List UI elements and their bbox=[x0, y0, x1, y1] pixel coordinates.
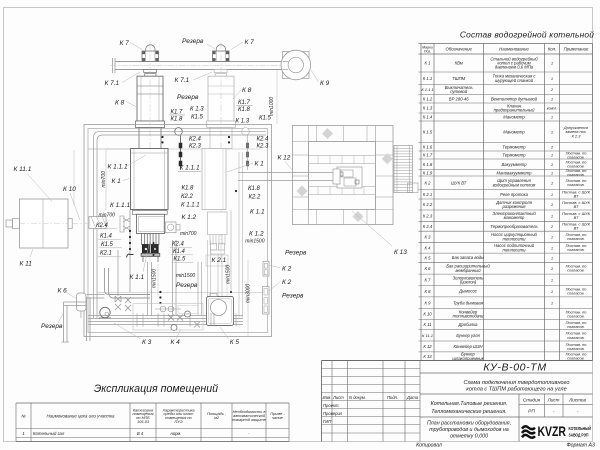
svg-text:К 1: К 1 bbox=[255, 161, 265, 168]
svg-text:согласов.: согласов. bbox=[567, 182, 585, 187]
svg-text:манометр: манометр bbox=[504, 215, 525, 220]
svg-text:К 5: К 5 bbox=[425, 255, 432, 260]
svg-text:К1.5: К1.5 bbox=[259, 116, 272, 122]
svg-text:ШУК ВТ: ШУК ВТ bbox=[451, 180, 467, 185]
svg-text:К 8: К 8 bbox=[425, 289, 432, 294]
svg-text:1: 1 bbox=[551, 76, 553, 81]
svg-text:Резерв: Резерв bbox=[182, 38, 204, 45]
svg-text:К1.5: К1.5 bbox=[191, 114, 204, 120]
svg-text:котла с ТШПМ работающего на уг: котла с ТШПМ работающего на угле bbox=[466, 387, 566, 393]
svg-text:К 1.1.1: К 1.1.1 bbox=[421, 87, 433, 92]
svg-text:К 1: К 1 bbox=[425, 61, 431, 66]
svg-text:К 2.3: К 2.3 bbox=[572, 133, 582, 138]
svg-text:min1000: min1000 bbox=[269, 97, 275, 116]
svg-text:К2.2: К2.2 bbox=[249, 195, 262, 201]
svg-text:1: 1 bbox=[22, 431, 24, 436]
svg-text:К 11: К 11 bbox=[20, 261, 33, 268]
svg-text:Наименование: Наименование bbox=[499, 47, 529, 52]
svg-text:KVZR: KVZR bbox=[538, 423, 567, 439]
svg-text:1: 1 bbox=[551, 245, 553, 250]
svg-text:К 2: К 2 bbox=[282, 279, 292, 286]
svg-text:К 1.3: К 1.3 bbox=[423, 106, 433, 111]
svg-text:Резерв: Резерв bbox=[177, 94, 199, 101]
svg-text:компл.: компл. bbox=[547, 107, 558, 111]
svg-text:КУ-В-00-ТМ: КУ-В-00-ТМ bbox=[483, 362, 546, 374]
svg-text:Примечание: Примечание bbox=[564, 47, 589, 52]
svg-text:К 1: К 1 bbox=[112, 178, 122, 185]
svg-text:К 2.2: К 2.2 bbox=[423, 202, 433, 207]
svg-text:согласов.: согласов. bbox=[567, 346, 585, 351]
svg-text:согласов.: согласов. bbox=[567, 356, 585, 361]
svg-text:К 10: К 10 bbox=[63, 186, 76, 193]
svg-text:Вентилятор дутьевой: Вентилятор дутьевой bbox=[491, 96, 538, 101]
svg-text:К1.5: К1.5 bbox=[101, 242, 114, 248]
svg-text:К1.8: К1.8 bbox=[238, 107, 251, 113]
svg-text:min700: min700 bbox=[180, 231, 197, 237]
svg-text:К 1.7: К 1.7 bbox=[423, 153, 433, 158]
svg-text:Изм.: Изм. bbox=[323, 395, 332, 400]
svg-text:К2.4: К2.4 bbox=[189, 137, 202, 143]
svg-text:К1.5: К1.5 bbox=[174, 257, 187, 263]
svg-text:Вакуумметр: Вакуумметр bbox=[501, 162, 527, 167]
svg-text:min1500: min1500 bbox=[152, 269, 158, 288]
svg-text:К2.3: К2.3 bbox=[257, 144, 270, 150]
svg-text:ВР 280-46: ВР 280-46 bbox=[449, 96, 469, 101]
svg-text:К 1.1.1: К 1.1.1 bbox=[180, 165, 200, 172]
svg-text:К1.8: К1.8 bbox=[171, 117, 184, 123]
svg-text:Манометр: Манометр bbox=[503, 115, 525, 120]
svg-text:Подп.: Подп. bbox=[387, 395, 398, 400]
svg-text:теплосети: теплосети bbox=[502, 236, 526, 241]
svg-text:К 2: К 2 bbox=[282, 266, 292, 273]
svg-text:Наименование цеха или участка: Наименование цеха или участка bbox=[47, 414, 116, 419]
svg-text:ВТ: ВТ bbox=[574, 204, 579, 209]
svg-text:К 11: К 11 bbox=[424, 322, 432, 327]
svg-text:К 8: К 8 bbox=[242, 87, 252, 94]
svg-text:Кол.: Кол. bbox=[548, 47, 556, 52]
svg-text:К 13: К 13 bbox=[394, 249, 407, 256]
svg-text:К 6: К 6 bbox=[425, 266, 432, 271]
svg-text:Резерв: Резерв bbox=[285, 250, 307, 257]
svg-text:К 2.3: К 2.3 bbox=[423, 213, 433, 218]
svg-text:согласов.: согласов. bbox=[567, 172, 585, 177]
svg-text:Обозначение: Обозначение bbox=[446, 47, 473, 52]
svg-text:Бункер угля: Бункер угля bbox=[456, 333, 480, 338]
svg-text:Формат А3: Формат А3 bbox=[567, 443, 595, 449]
svg-text:№: № bbox=[21, 414, 26, 419]
svg-text:К 1.6: К 1.6 bbox=[423, 144, 433, 149]
svg-text:К2.4: К2.4 bbox=[172, 242, 185, 248]
svg-text:Листов: Листов bbox=[568, 398, 586, 403]
svg-text:Конвейер ШЗН: Конвейер ШЗН bbox=[453, 344, 483, 349]
svg-text:Резерв: Резерв bbox=[176, 282, 198, 289]
svg-text:105-03: 105-03 bbox=[137, 419, 150, 424]
svg-text:1: 1 bbox=[551, 129, 553, 134]
svg-text:шлакоприемник: шлакоприемник bbox=[452, 356, 484, 361]
svg-text:К 1.4: К 1.4 bbox=[423, 115, 433, 120]
svg-text:ЗАВОД РЭП: ЗАВОД РЭП bbox=[569, 432, 589, 438]
svg-text:ПУЭ: ПУЭ bbox=[174, 419, 182, 424]
svg-text:1: 1 bbox=[551, 266, 553, 271]
svg-text:согласов.: согласов. bbox=[567, 324, 585, 329]
svg-text:Манометр: Манометр bbox=[503, 129, 525, 134]
svg-text:1: 1 bbox=[551, 202, 553, 207]
svg-text:К 1.8: К 1.8 bbox=[423, 162, 433, 167]
svg-text:Котельная.Типовые решения.: Котельная.Типовые решения. bbox=[431, 401, 508, 407]
svg-text:Лист: Лист bbox=[547, 398, 560, 403]
svg-text:min700: min700 bbox=[99, 213, 116, 219]
svg-text:Состав водогрейной котельной: Состав водогрейной котельной bbox=[460, 30, 594, 40]
svg-text:В 4: В 4 bbox=[137, 431, 144, 436]
svg-text:К 5: К 5 bbox=[230, 339, 240, 346]
svg-text:К 2.1: К 2.1 bbox=[423, 192, 432, 197]
svg-text:Лист: Лист bbox=[332, 395, 344, 400]
svg-text:отметку 0,000: отметку 0,000 bbox=[450, 434, 488, 440]
svg-text:К 7.1: К 7.1 bbox=[175, 77, 190, 84]
svg-text:(циклон): (циклон) bbox=[460, 279, 477, 284]
svg-text:трубопроводов и дымоходов на: трубопроводов и дымоходов на bbox=[429, 427, 509, 433]
svg-text:чание: чание bbox=[272, 415, 283, 420]
svg-text:1: 1 bbox=[551, 234, 553, 239]
svg-text:согласов.: согласов. bbox=[567, 291, 585, 296]
svg-text:ТШПМ: ТШПМ bbox=[452, 76, 465, 81]
svg-text:Резерв: Резерв bbox=[282, 293, 304, 300]
svg-text:Копировал: Копировал bbox=[416, 443, 442, 449]
svg-text:1: 1 bbox=[551, 115, 553, 120]
svg-text:К 1.9: К 1.9 bbox=[423, 170, 433, 175]
svg-text:РП: РП bbox=[528, 409, 535, 415]
svg-text:К 1.1: К 1.1 bbox=[130, 274, 145, 281]
svg-text:1: 1 bbox=[551, 192, 553, 197]
svg-text:Стадия: Стадия bbox=[523, 398, 541, 403]
svg-text:К 8: К 8 bbox=[115, 100, 125, 107]
svg-text:К 9: К 9 bbox=[425, 300, 432, 305]
svg-text:пожарной защите: пожарной защите bbox=[232, 417, 266, 422]
svg-text:Резерв: Резерв bbox=[41, 323, 63, 330]
svg-text:1: 1 bbox=[551, 153, 553, 158]
svg-text:К 7.1: К 7.1 bbox=[105, 80, 120, 87]
svg-text:К 12: К 12 bbox=[423, 344, 432, 349]
svg-text:разряжения: разряжения bbox=[501, 204, 526, 209]
svg-text:КВм: КВм bbox=[455, 61, 463, 66]
svg-text:К 2.1: К 2.1 bbox=[212, 257, 227, 264]
svg-text:min700: min700 bbox=[101, 171, 107, 188]
svg-text:К1.4: К1.4 bbox=[173, 249, 186, 255]
svg-text:min3000: min3000 bbox=[246, 284, 252, 303]
svg-text:К 1.2: К 1.2 bbox=[423, 96, 433, 101]
svg-text:путевой: путевой bbox=[450, 89, 468, 94]
svg-text:К 11.1: К 11.1 bbox=[14, 166, 32, 173]
svg-text:К 4: К 4 bbox=[171, 339, 181, 346]
svg-text:Экспликация помещений: Экспликация помещений bbox=[94, 383, 218, 395]
svg-text:К 1.1: К 1.1 bbox=[250, 209, 265, 216]
svg-text:ГИП: ГИП bbox=[323, 419, 332, 424]
svg-text:Проект.: Проект. bbox=[323, 403, 340, 408]
svg-text:согласов.: согласов. bbox=[567, 247, 585, 252]
svg-text:N докум.: N докум. bbox=[349, 395, 366, 400]
svg-text:План расстановки оборудования,: План расстановки оборудования, bbox=[427, 421, 511, 427]
svg-text:К 4: К 4 bbox=[425, 245, 432, 250]
svg-text:К1.7: К1.7 bbox=[171, 110, 184, 116]
svg-text:Дробилка: Дробилка bbox=[458, 322, 479, 327]
svg-text:Мановакуумметр: Мановакуумметр bbox=[497, 170, 533, 175]
svg-text:шурующей планкой: шурующей планкой bbox=[495, 78, 534, 83]
svg-text:согласов.: согласов. bbox=[567, 335, 585, 340]
svg-text:К 10: К 10 bbox=[423, 312, 432, 317]
svg-text:м2: м2 bbox=[214, 415, 220, 420]
svg-text:К 7: К 7 bbox=[245, 39, 255, 46]
svg-text:К 1.2: К 1.2 bbox=[182, 214, 197, 221]
svg-text:теплосети: теплосети bbox=[502, 247, 526, 252]
svg-text:давлением 0,6 МПа: давлением 0,6 МПа bbox=[495, 65, 534, 70]
svg-text:К 1.3: К 1.3 bbox=[236, 119, 250, 125]
svg-text:К 7: К 7 bbox=[120, 40, 130, 47]
svg-text:1: 1 bbox=[551, 255, 553, 260]
svg-text:согласов.: согласов. bbox=[567, 268, 585, 273]
svg-text:Котельный зал: Котельный зал bbox=[33, 431, 65, 436]
svg-text:1: 1 bbox=[551, 277, 553, 282]
svg-text:К1.4: К1.4 bbox=[100, 234, 113, 240]
svg-text:1: 1 bbox=[551, 300, 553, 305]
svg-text:согласов.: согласов. bbox=[567, 236, 585, 241]
svg-text:К 1.1: К 1.1 bbox=[423, 76, 432, 81]
svg-text:К 12: К 12 bbox=[278, 155, 291, 162]
svg-text:ВТ: ВТ bbox=[574, 215, 579, 220]
svg-text:К2.4: К2.4 bbox=[257, 137, 270, 143]
svg-text:К2.4: К2.4 bbox=[96, 223, 109, 229]
svg-text:К 3: К 3 bbox=[142, 339, 152, 346]
svg-text:1: 1 bbox=[551, 180, 553, 185]
svg-text:Дымосос: Дымосос bbox=[458, 289, 478, 294]
svg-text:К 1.1.1: К 1.1.1 bbox=[181, 203, 200, 209]
svg-text:Термометр: Термометр bbox=[502, 153, 526, 158]
svg-text:мембранный: мембранный bbox=[455, 268, 481, 273]
svg-text:К 1.1.1: К 1.1.1 bbox=[110, 202, 130, 209]
svg-text:К 3: К 3 bbox=[425, 234, 432, 239]
svg-text:К1.8: К1.8 bbox=[182, 186, 195, 192]
svg-text:топливоподачи: топливоподачи bbox=[453, 314, 484, 319]
svg-text:К 13: К 13 bbox=[423, 354, 432, 359]
svg-text:Дата: Дата bbox=[406, 395, 419, 400]
svg-text:Термопреобразователь: Термопреобразователь bbox=[490, 224, 537, 229]
svg-text:К 1.2: К 1.2 bbox=[249, 231, 264, 238]
svg-text:К1.7: К1.7 bbox=[238, 100, 251, 106]
svg-text:1: 1 bbox=[551, 162, 553, 167]
svg-text:min1500: min1500 bbox=[176, 273, 195, 279]
svg-text:1: 1 bbox=[551, 61, 553, 66]
svg-text:Поз.: Поз. bbox=[424, 50, 431, 54]
svg-text:1: 1 bbox=[551, 213, 553, 218]
svg-text:ВТ: ВТ bbox=[574, 226, 579, 231]
svg-text:К2.1: К2.1 bbox=[100, 251, 112, 257]
svg-text:водогрейным котлом: водогрейным котлом bbox=[493, 182, 536, 187]
svg-text:Тепломеханические решения.: Тепломеханические решения. bbox=[431, 409, 506, 415]
svg-text:К 11.1: К 11.1 bbox=[422, 333, 433, 338]
svg-text:К 2.4: К 2.4 bbox=[423, 224, 433, 229]
svg-text:Проверил: Проверил bbox=[323, 411, 343, 416]
svg-text:К 1.1.1: К 1.1.1 bbox=[108, 164, 128, 171]
svg-text:Бак запаса воды: Бак запаса воды bbox=[452, 255, 484, 260]
svg-text:К 7: К 7 bbox=[425, 277, 432, 282]
svg-text:min1500: min1500 bbox=[226, 265, 232, 284]
svg-text:К2.3: К2.3 bbox=[189, 144, 202, 150]
svg-text:норм.: норм. bbox=[171, 431, 182, 436]
svg-text:предохранительный: предохранительный bbox=[494, 108, 535, 113]
svg-text:К 1.5: К 1.5 bbox=[423, 129, 433, 134]
svg-text:согласов.: согласов. bbox=[567, 313, 585, 318]
svg-text:К 2: К 2 bbox=[425, 180, 432, 185]
svg-text:К2.2: К2.2 bbox=[181, 194, 194, 200]
svg-text:Термометр: Термометр bbox=[502, 144, 526, 149]
svg-text:К 1.3: К 1.3 bbox=[190, 107, 204, 113]
svg-text:Реле протока: Реле протока bbox=[500, 192, 528, 197]
svg-text:min1500: min1500 bbox=[245, 239, 264, 245]
svg-text:Схема подключения твердотоплив: Схема подключения твердотопливного bbox=[464, 380, 570, 386]
svg-text:К 9: К 9 bbox=[320, 80, 330, 87]
svg-text:К1.8: К1.8 bbox=[248, 186, 261, 192]
svg-text:К 6: К 6 bbox=[58, 288, 68, 295]
svg-text:1: 1 bbox=[551, 289, 553, 294]
svg-text:1: 1 bbox=[551, 96, 553, 101]
svg-text:Труба дымовая: Труба дымовая bbox=[453, 300, 484, 305]
svg-text:ВТ: ВТ bbox=[574, 194, 579, 199]
svg-text:1: 1 bbox=[551, 170, 553, 175]
